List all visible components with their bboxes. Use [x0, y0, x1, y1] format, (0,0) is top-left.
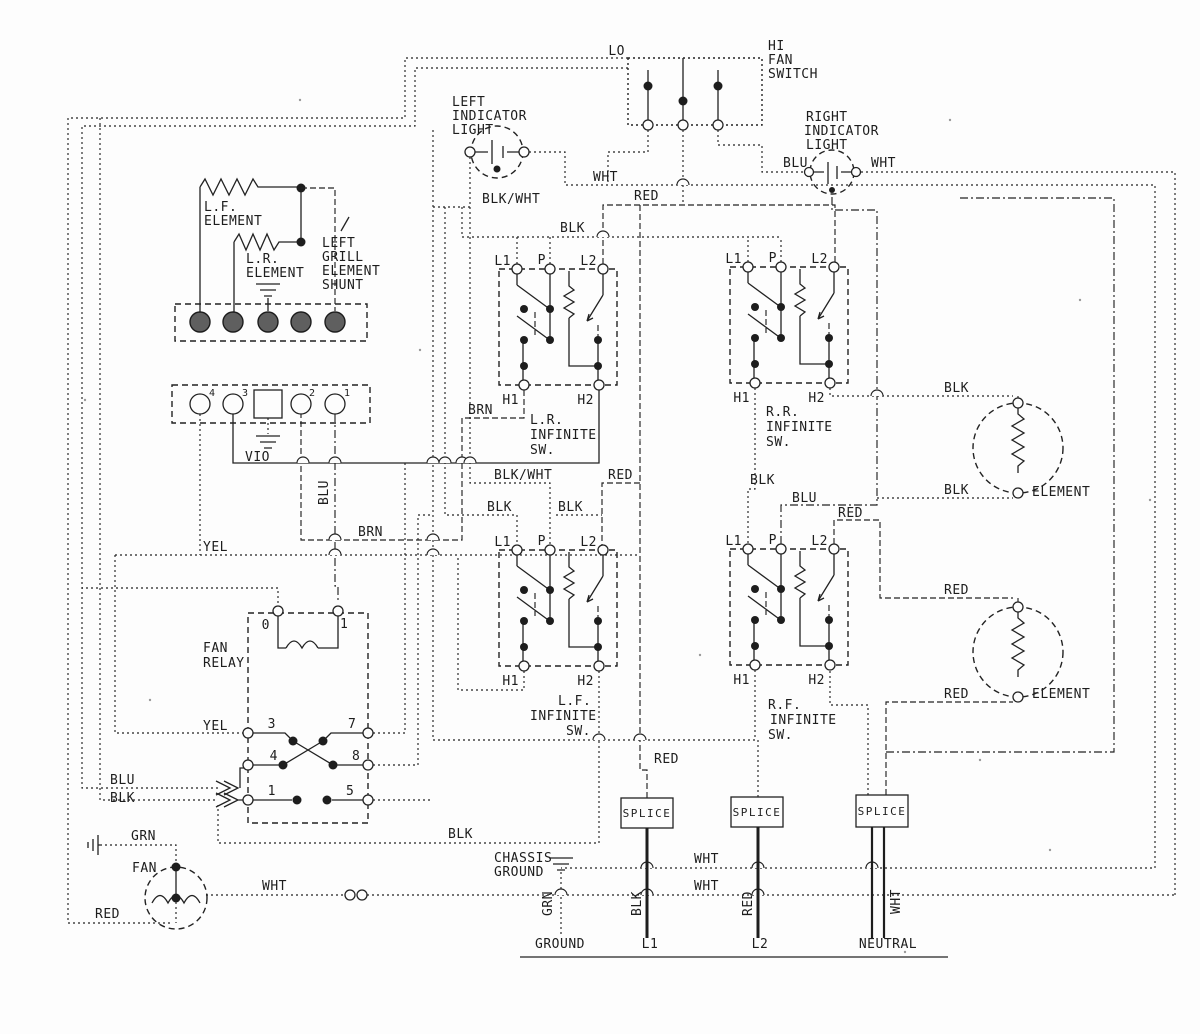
connector-pin — [325, 394, 345, 414]
terminal-label-l2: L2 — [811, 252, 828, 267]
wire-label-blk: BLK — [448, 827, 473, 842]
rf-infinite-switch — [730, 544, 848, 670]
wire-label-wht: WHT — [694, 879, 719, 894]
right-indicator-label: LIGHT — [806, 138, 848, 153]
fan-switch-name: SWITCH — [768, 67, 818, 82]
wire-label-red: RED — [944, 687, 969, 702]
wire-label-blk: BLK — [560, 221, 585, 236]
relay-pin-8: 8 — [352, 749, 360, 764]
wire-label-blk: BLK — [630, 891, 645, 916]
terminal-h2 — [594, 380, 604, 390]
wire-label-blu: BLU — [110, 773, 135, 788]
hatched-terminal — [258, 312, 278, 332]
wire-hop — [677, 179, 689, 185]
terminal-l1 — [743, 544, 753, 554]
terminal — [678, 120, 688, 130]
rf-switch-name: R.F. — [768, 698, 801, 713]
fan-dot — [172, 863, 181, 872]
contact-dot — [520, 643, 528, 651]
contact-dot — [825, 616, 833, 624]
relay-pin — [243, 760, 253, 770]
contact-dot — [777, 303, 785, 311]
element-upper — [973, 398, 1063, 498]
contact-dot — [825, 334, 833, 342]
fan-switch-name: FAN — [768, 53, 793, 68]
wire-hop — [634, 734, 646, 740]
relay-pin-0: 0 — [262, 618, 270, 633]
hatched-terminal — [190, 312, 210, 332]
rr-switch-name: INFINITE — [766, 420, 833, 435]
supply-ground-label: GROUND — [535, 937, 585, 952]
connector-pin-4: 4 — [209, 388, 216, 399]
inline-connector — [357, 890, 367, 900]
contact-dot — [751, 585, 759, 593]
contact-dot — [594, 336, 602, 344]
terminal-p — [776, 262, 786, 272]
terminal-h1 — [750, 660, 760, 670]
contact-dot — [751, 642, 759, 650]
hatched-terminal — [325, 312, 345, 332]
terminal-label-l1: L1 — [494, 535, 511, 550]
contact-dot — [594, 362, 602, 370]
wire-hop — [871, 390, 883, 396]
wire-hop — [427, 457, 439, 463]
rr-infinite-switch — [730, 262, 848, 388]
terminal — [713, 120, 723, 130]
wire-hop — [593, 734, 605, 740]
wire-yel — [115, 414, 640, 733]
ground-symbol — [88, 835, 100, 855]
wire-hop — [555, 889, 567, 895]
coil-terminal-0 — [273, 606, 283, 616]
terminal-label-l2: L2 — [811, 534, 828, 549]
lf-element-resistor — [200, 179, 301, 312]
terminal-label-p: P — [538, 253, 546, 268]
terminal-l1 — [512, 264, 522, 274]
contact-dot — [546, 305, 554, 313]
contact-dot — [520, 362, 528, 370]
lf-switch-name: SW. — [566, 724, 591, 739]
wire-relay-coil0 — [82, 588, 278, 603]
contact-dot — [777, 334, 785, 342]
wire-label-red: RED — [838, 506, 863, 521]
terminal-h2 — [594, 661, 604, 671]
fan-switch-hi-label: HI — [768, 39, 785, 54]
relay-pin-1b: 1 — [268, 784, 276, 799]
wire-hop — [329, 457, 341, 463]
contact-dot — [293, 796, 302, 805]
element-resistor — [1012, 612, 1024, 677]
supply-neutral-label: NEUTRAL — [859, 937, 917, 952]
wiring-diagram-page: LO HI FAN SWITCH LEFT INDICATOR LIGHT RI… — [0, 0, 1200, 1034]
left-grill-shunt-label: GRILL — [322, 250, 364, 265]
lf-switch-name: L.F. — [558, 694, 591, 709]
terminal-label-l1: L1 — [725, 534, 742, 549]
element-resistor — [1012, 408, 1024, 473]
wire-label-blk: BLK — [558, 500, 583, 515]
wire-label-yel: YEL — [203, 540, 228, 555]
wire-label-red: RED — [95, 907, 120, 922]
contact-dot — [329, 761, 338, 770]
terminal — [1013, 692, 1023, 702]
wire-hop — [329, 549, 341, 555]
rr-switch-name: R.R. — [766, 405, 799, 420]
relay-pin-1: 1 — [340, 617, 348, 632]
contact-dot — [714, 82, 723, 91]
lr-switch-name: INFINITE — [530, 428, 597, 443]
wire-blu-relay-coil — [335, 414, 338, 603]
terminal-block-upper — [175, 304, 367, 341]
wire-relay-8 — [368, 515, 433, 765]
wire-red-feed — [602, 205, 647, 798]
contact-dot — [546, 586, 554, 594]
right-indicator-label: INDICATOR — [804, 124, 879, 139]
terminal-l2 — [829, 544, 839, 554]
connector-pin-2: 2 — [309, 388, 316, 399]
lamp-dot — [829, 187, 835, 193]
relay-pin — [363, 795, 373, 805]
terminal — [1013, 488, 1023, 498]
chassis-ground-label: CHASSIS — [494, 851, 552, 866]
switch-internals — [748, 551, 834, 660]
terminal-label-p: P — [769, 251, 777, 266]
contact-dot — [520, 617, 528, 625]
contact-dot — [644, 82, 653, 91]
wire-label-wht: WHT — [593, 170, 618, 185]
splice-label: SPLICE — [623, 807, 672, 820]
contact-dot — [751, 360, 759, 368]
switch-internals — [517, 552, 603, 661]
wire-hop — [427, 534, 439, 540]
contact-dot — [751, 616, 759, 624]
relay-pin-4: 4 — [270, 749, 278, 764]
wire-label-blk: BLK — [944, 483, 969, 498]
terminal-h1 — [519, 380, 529, 390]
wire-label-grn: GRN — [131, 829, 156, 844]
fan-switch — [628, 58, 762, 130]
fan-relay-name: RELAY — [203, 656, 245, 671]
wire-label-brn: BRN — [358, 525, 383, 540]
left-indicator-label: INDICATOR — [452, 109, 527, 124]
lamp-dot — [494, 166, 501, 173]
wire-label-blkwht: BLK/WHT — [482, 192, 540, 207]
left-indicator-label: LEFT — [452, 95, 485, 110]
contact-dot — [520, 336, 528, 344]
relay-pin — [363, 728, 373, 738]
connector-pin — [190, 394, 210, 414]
element-upper-label: ELEMENT — [1032, 485, 1090, 500]
right-indicator-label: RIGHT — [806, 110, 848, 125]
terminal-label-h1: H1 — [733, 391, 750, 406]
terminal-label-l1: L1 — [725, 252, 742, 267]
fan-switch-lo-label: LO — [608, 44, 625, 59]
terminal-p — [545, 264, 555, 274]
relay-pin — [243, 728, 253, 738]
contact-dot — [594, 617, 602, 625]
terminal-l2 — [829, 262, 839, 272]
wire-label-red: RED — [634, 189, 659, 204]
splice-label: SPLICE — [858, 805, 907, 818]
terminal-label-p: P — [538, 534, 546, 549]
wire-hop — [427, 549, 439, 555]
relay-pin — [243, 795, 253, 805]
terminal — [465, 147, 475, 157]
wire-hop — [329, 534, 341, 540]
wire-label-yel: YEL — [203, 719, 228, 734]
rr-switch-name: SW. — [766, 435, 791, 450]
wire-hop — [297, 457, 309, 463]
element-circle — [973, 607, 1063, 697]
switch-internals — [517, 271, 603, 380]
contact-dot — [520, 586, 528, 594]
fan-motor — [88, 835, 367, 929]
wire-label-red: RED — [741, 891, 756, 916]
contact-dot — [594, 643, 602, 651]
contact-dot — [546, 336, 554, 344]
wire-label-red: RED — [654, 752, 679, 767]
contact-dot — [319, 737, 328, 746]
switch-internals — [748, 269, 834, 378]
lr-element-label: L.R. — [246, 252, 279, 267]
contact-dot — [546, 617, 554, 625]
terminal-label-h2: H2 — [808, 391, 825, 406]
wire-blk-rf-l1 — [748, 388, 755, 544]
terminal-label-h2: H2 — [808, 673, 825, 688]
terminal — [643, 120, 653, 130]
lf-element-label: ELEMENT — [204, 214, 262, 229]
contact-dot — [520, 305, 528, 313]
terminal-label-h1: H1 — [733, 673, 750, 688]
terminal — [852, 168, 861, 177]
junction-dot — [297, 238, 306, 247]
terminal-p — [545, 545, 555, 555]
supply-l2-label: L2 — [752, 937, 769, 952]
lamp-electrodes — [470, 140, 524, 164]
wire-label-grn: GRN — [541, 891, 556, 916]
wire-label-red: RED — [608, 468, 633, 483]
terminal-label-p: P — [769, 533, 777, 548]
terminal-h1 — [750, 378, 760, 388]
connector-pin-3: 3 — [242, 388, 249, 399]
terminal-label-l1: L1 — [494, 254, 511, 269]
connector-pin-1: 1 — [344, 388, 351, 399]
splices-and-supply — [549, 795, 908, 938]
relay-pin-3: 3 — [268, 717, 276, 732]
chassis-boundary — [886, 198, 1114, 752]
chassis-ground-label: GROUND — [494, 865, 544, 880]
contact-dot — [751, 334, 759, 342]
lamp-electrodes — [809, 162, 855, 184]
terminal-h2 — [825, 660, 835, 670]
terminal-l2 — [598, 264, 608, 274]
inline-connector — [345, 890, 355, 900]
terminal-l1 — [743, 262, 753, 272]
wire-label-blk: BLK — [944, 381, 969, 396]
left-grill-shunt-label: ELEMENT — [322, 264, 380, 279]
wire-lf-h1 — [458, 555, 524, 690]
terminal-label-h2: H2 — [577, 674, 594, 689]
terminal-l2 — [598, 545, 608, 555]
connector-pin — [291, 394, 311, 414]
terminal-block-lower — [172, 385, 370, 448]
wire-splice3-feed — [830, 670, 868, 795]
element-circle — [973, 403, 1063, 493]
wire-label-blk: BLK — [487, 500, 512, 515]
fan-label: FAN — [132, 861, 157, 876]
wire-elem-upper-blk — [830, 388, 1018, 498]
wire-elem-lower-red — [886, 702, 1013, 795]
wire-label-wht: WHT — [262, 879, 287, 894]
lr-switch-name: SW. — [530, 443, 555, 458]
wire-label-blk: BLK — [750, 473, 775, 488]
wire-red-right — [834, 520, 1018, 602]
contact-dot — [825, 642, 833, 650]
element-lower-label: ELEMENT — [1032, 687, 1090, 702]
lr-element-label: ELEMENT — [246, 266, 304, 281]
wire-label-red: RED — [944, 583, 969, 598]
connector-square-pin — [254, 390, 282, 418]
terminal-h2 — [825, 378, 835, 388]
ground-symbol — [256, 436, 280, 448]
wire-blkwht — [470, 157, 550, 545]
contact-dot — [777, 585, 785, 593]
terminal — [519, 147, 529, 157]
wire-label-wht: WHT — [889, 889, 904, 914]
left-indicator-label: LIGHT — [452, 123, 494, 138]
wire-label-blu: BLU — [317, 480, 332, 505]
wire-hop — [597, 231, 609, 237]
terminal-p — [776, 544, 786, 554]
rf-switch-name: SW. — [768, 728, 793, 743]
lf-element-label: L.F. — [204, 200, 237, 215]
hatched-terminal — [223, 312, 243, 332]
connector-pin — [223, 394, 243, 414]
wire-label-wht: WHT — [871, 156, 896, 171]
wire-label-blu: BLU — [783, 156, 808, 171]
relay-pin — [363, 760, 373, 770]
terminal-label-h2: H2 — [577, 393, 594, 408]
contact-dot — [289, 737, 298, 746]
plug-connector-icon — [216, 768, 244, 807]
relay-pin-7: 7 — [348, 717, 356, 732]
fan-dot — [172, 894, 181, 903]
terminal-h1 — [519, 661, 529, 671]
relay-coil — [278, 616, 338, 648]
hatched-terminal — [291, 312, 311, 332]
terminal — [1013, 602, 1023, 612]
terminal-label-l2: L2 — [580, 254, 597, 269]
wire-label-blu: BLU — [792, 491, 817, 506]
contact-dot — [777, 616, 785, 624]
wire-label-vio: VIO — [245, 450, 270, 465]
right-indicator-light — [805, 150, 861, 194]
terminal-label-h1: H1 — [502, 393, 519, 408]
wire-red-bus — [603, 205, 835, 264]
wire-label-wht: WHT — [694, 852, 719, 867]
relay-pin-5: 5 — [346, 784, 354, 799]
terminal-label-h1: H1 — [502, 674, 519, 689]
lr-switch-name: L.R. — [530, 413, 563, 428]
wire-relay-7 — [368, 463, 405, 733]
contact-dot — [279, 761, 288, 770]
contact-dot — [323, 796, 332, 805]
terminal-label-l2: L2 — [580, 535, 597, 550]
fan-relay-name: FAN — [203, 641, 228, 656]
wire-wht-right — [861, 172, 1175, 895]
wire-label-blkwht: BLK/WHT — [494, 468, 552, 483]
contact-dot — [751, 303, 759, 311]
neutral-lead — [872, 827, 884, 938]
splice-label: SPLICE — [733, 806, 782, 819]
terminal — [1013, 398, 1023, 408]
left-grill-shunt-label: LEFT — [322, 236, 355, 251]
lr-infinite-switch — [499, 264, 617, 390]
wire-hop — [439, 457, 451, 463]
lf-infinite-switch — [499, 545, 617, 671]
ground-symbol — [256, 284, 280, 311]
supply-l1-label: L1 — [642, 937, 659, 952]
fan-switch-poles — [648, 58, 718, 125]
lf-switch-name: INFINITE — [530, 709, 597, 724]
coil-terminal-1 — [333, 606, 343, 616]
wiring-diagram: LO HI FAN SWITCH LEFT INDICATOR LIGHT RI… — [0, 0, 1200, 1034]
left-grill-shunt-label: SHUNT — [322, 278, 364, 293]
rf-switch-name: INFINITE — [770, 713, 837, 728]
contact-dot — [825, 360, 833, 368]
wire-label-blk: BLK — [110, 791, 135, 806]
shunt-tick — [341, 217, 349, 231]
wire-label-brn: BRN — [468, 403, 493, 418]
contact-dot — [679, 97, 688, 106]
terminal-l1 — [512, 545, 522, 555]
labels: LO HI FAN SWITCH LEFT INDICATOR LIGHT RI… — [95, 39, 1090, 952]
